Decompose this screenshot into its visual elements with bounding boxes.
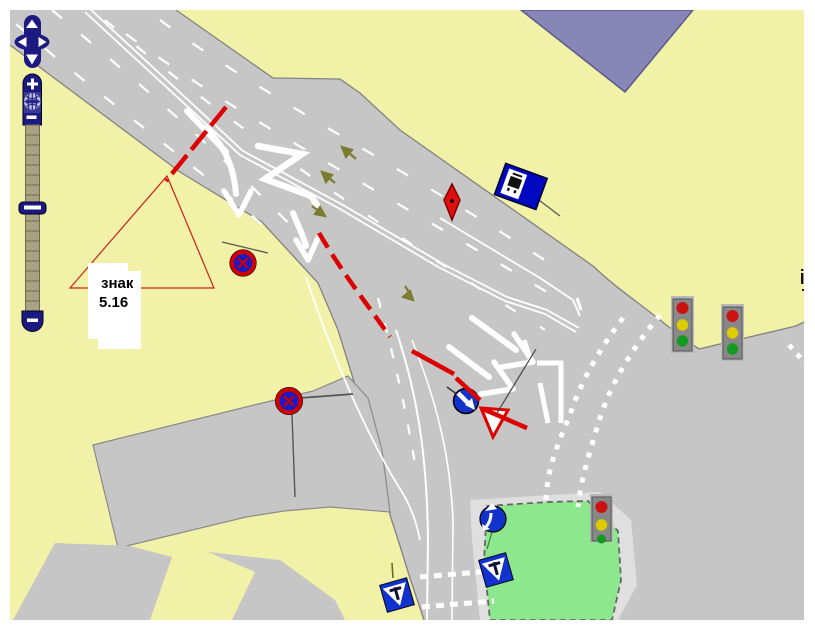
svg-text:знак: знак [101,275,134,292]
svg-text:5.16: 5.16 [99,294,128,311]
